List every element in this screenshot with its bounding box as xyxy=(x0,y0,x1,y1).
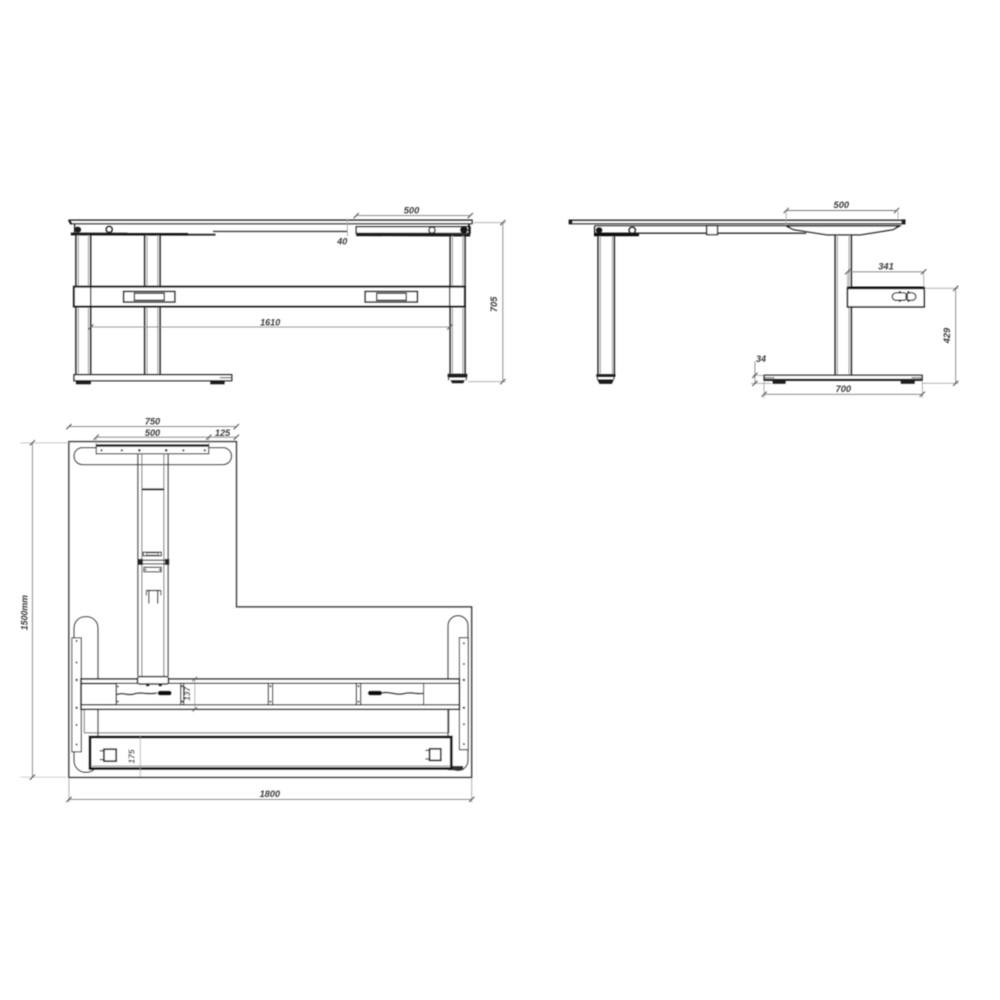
svg-text:40: 40 xyxy=(336,237,347,247)
svg-text:137: 137 xyxy=(182,686,192,700)
svg-text:34: 34 xyxy=(756,354,766,364)
svg-text:750: 750 xyxy=(145,416,161,426)
svg-text:500: 500 xyxy=(404,205,420,215)
svg-text:705: 705 xyxy=(489,296,499,312)
svg-text:700: 700 xyxy=(836,384,852,394)
svg-text:341: 341 xyxy=(878,261,894,271)
svg-text:125: 125 xyxy=(215,428,231,438)
svg-text:1610: 1610 xyxy=(260,317,280,327)
svg-text:1800: 1800 xyxy=(260,789,281,799)
svg-text:429: 429 xyxy=(942,327,952,344)
svg-text:175: 175 xyxy=(126,749,136,763)
svg-text:1500mm: 1500mm xyxy=(19,595,29,630)
svg-text:500: 500 xyxy=(834,200,850,210)
svg-text:500: 500 xyxy=(145,428,161,438)
